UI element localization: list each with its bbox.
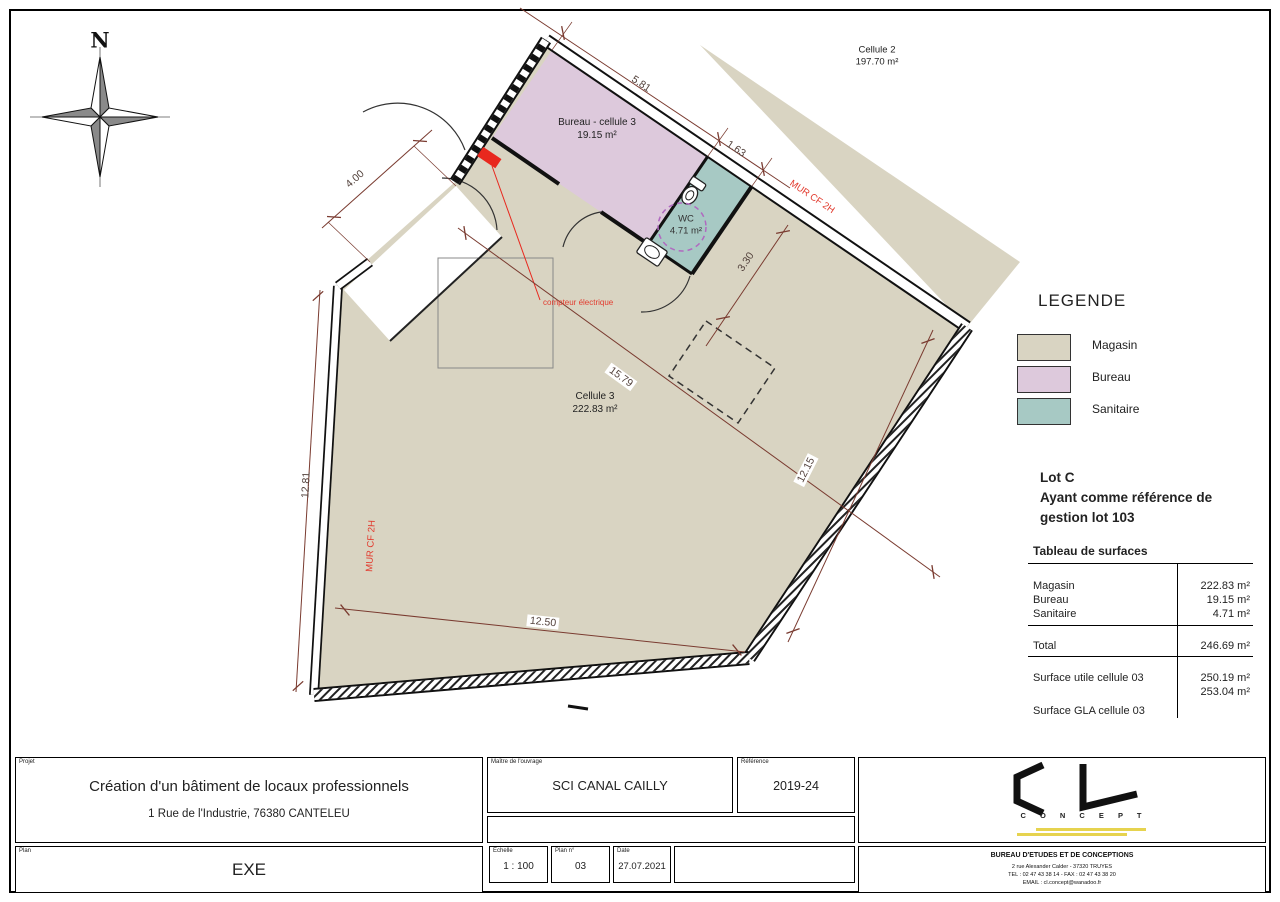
empty-box-middle [487,816,855,843]
scale-value: 1 : 100 [490,861,547,872]
table-row: Magasin 222.83 m² [1033,580,1250,592]
cellule2-label: Cellule 2 197.70 m² [856,45,899,70]
legend-item-bureau: Bureau [1017,366,1257,392]
reference-box: Référence 2019-24 [737,757,855,813]
logo-wordmark: C O N C E P T [989,811,1179,820]
logo-box: C O N C E P T [858,757,1266,843]
plan-type-box-label: Plan [19,848,31,854]
electric-meter-label: compteur électrique [543,298,613,307]
client-box: Maître de l'ouvrage SCI CANAL CAILLY [487,757,733,813]
lot-note: Lot C Ayant comme référence de gestion l… [1040,468,1275,528]
project-title: Création d'un bâtiment de locaux profess… [16,778,482,795]
date-value: 27.07.2021 [614,861,670,872]
table-rule [1028,625,1253,626]
legend-label: Bureau [1092,370,1131,384]
legend-title: LEGENDE [1038,291,1126,311]
legend-swatch-bureau [1017,366,1071,393]
legend-item-sanitaire: Sanitaire [1017,398,1257,424]
wc-label: WC 4.71 m² [670,214,702,239]
reference-mark [568,706,588,709]
table-rule [1028,656,1253,657]
empty-box-bottom [674,846,855,883]
office-name: BUREAU D'ETUDES ET DE CONCEPTIONS [859,852,1265,859]
reference-value: 2019-24 [738,779,854,793]
scale-box-label: Echelle [493,848,513,854]
client-value: SCI CANAL CAILLY [488,778,732,793]
project-box: Projet Création d'un bâtiment de locaux … [15,757,483,843]
plan-type-box: Plan EXE [15,846,483,893]
table-total-row: Total 246.69 m² [1033,640,1250,652]
project-box-label: Projet [19,759,35,765]
legend-swatch-magasin [1017,334,1071,361]
plan-number-box: Plan n° 03 [551,846,610,883]
reference-box-label: Référence [741,759,769,765]
legend-label: Magasin [1092,338,1137,352]
table-row: Surface utile cellule 03 250.19 m² [1033,672,1250,684]
table-row: Bureau 19.15 m² [1033,594,1250,606]
date-box: Date 27.07.2021 [613,846,671,883]
legend-label: Sanitaire [1092,402,1139,416]
bureau-label: Bureau - cellule 3 19.15 m² [558,116,636,142]
table-rule [1028,563,1253,564]
client-box-label: Maître de l'ouvrage [491,759,542,765]
table-row: Sanitaire 4.71 m² [1033,608,1250,620]
table-row: Surface GLA cellule 03 [1033,705,1250,717]
legend-item-magasin: Magasin [1017,334,1257,360]
project-address: 1 Rue de l'Industrie, 76380 CANTELEU [16,808,482,820]
office-address: 2 rue Alexander Calder - 37320 TRUYES [859,864,1265,870]
cellule3-label: Cellule 3 222.83 m² [572,390,617,416]
compass-north-label: N [90,28,109,53]
plan-type-value: EXE [16,860,482,880]
plan-number-box-label: Plan n° [555,848,574,854]
legend-swatch-sanitaire [1017,398,1071,425]
logo-underline-2 [1017,833,1127,836]
dim-12-81: 12.81 [299,472,312,499]
scale-box: Echelle 1 : 100 [489,846,548,883]
plan-number-value: 03 [552,861,609,872]
logo-underline-1 [1036,828,1146,831]
office-email: EMAIL : cl.concept@wanadoo.fr [859,880,1265,886]
compass-rose [30,47,170,187]
office-box: BUREAU D'ETUDES ET DE CONCEPTIONS 2 rue … [858,846,1266,893]
plan-sheet: { "sheet": { "compass_north": "N" }, "pl… [0,0,1280,902]
date-box-label: Date [617,848,630,854]
surface-table-title: Tableau de surfaces [1033,544,1148,558]
office-phone: TEL : 02 47 43 38 14 - FAX : 02 47 43 38… [859,872,1265,878]
